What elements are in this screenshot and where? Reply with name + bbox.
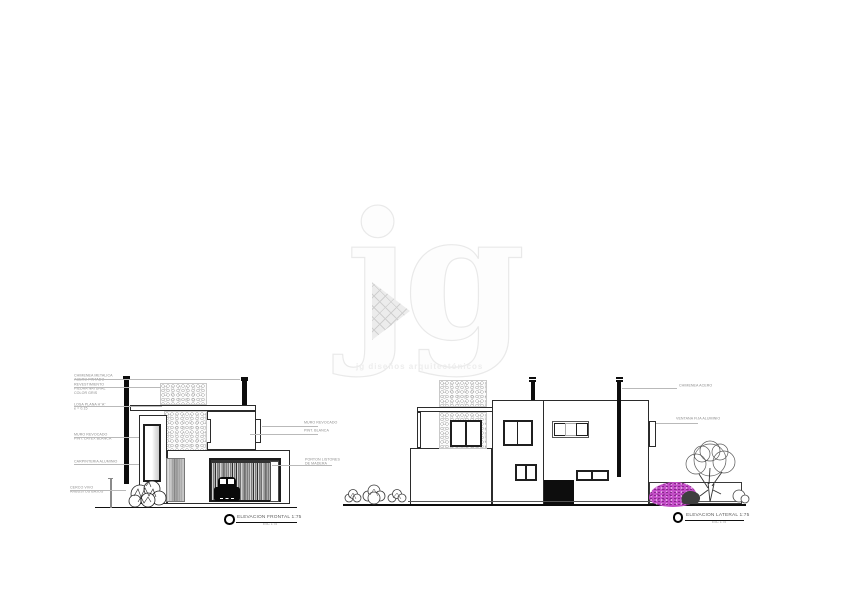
elev2-chimney1-cap [529,377,536,379]
elev2-scale-note: ESC 1:75 [712,521,726,524]
elev2-chimney1 [531,382,535,400]
elev1-stone-parapet [160,383,207,405]
elev1-garage-pillar [270,461,280,502]
elev2-side-window [649,421,656,448]
elev2-bushes-left [343,480,409,505]
elev1-leader [250,434,318,435]
elev2-note: VENTANA FIJA ALUMINIO [676,417,720,421]
elev1-leader [70,490,126,491]
elev1-tall-window [143,424,161,482]
car-silhouette [214,477,241,503]
elev1-stone-wall-upper [164,411,207,451]
elev1-shrub [126,474,170,508]
elev1-leader [74,379,240,380]
elev2-lower-volume [410,448,492,505]
elev2-stone-parapet [439,380,488,407]
window-divider [465,422,467,445]
elev1-note: PINT. BLANCA [304,429,329,433]
window-pane [565,423,577,437]
elev2-leader [622,388,677,389]
elev2-window-stone [450,420,482,447]
elev1-scale-note: ESC 1:75 [263,523,277,526]
window-pane [576,423,588,437]
car-windshield [220,479,234,484]
tree-base-shrub [682,491,701,504]
elev2-window-a [503,420,533,446]
elev1-title: ELEVACION FRONTAL 1:75 [237,515,302,520]
elev1-leader [272,465,332,466]
elev1-note: REVESTIMIENTO PIEDRA NATURAL COLOR GRIS [74,383,106,396]
elev2-chimney2 [617,382,621,477]
elev2-leader [656,423,698,424]
elev2-window-c [515,464,538,481]
elev1-title-marker [224,514,235,525]
window-divider [525,466,527,479]
watermark-tagline: jg diseños arquitectónicos [356,362,483,371]
elev1-pole-cap [108,478,113,480]
elev1-upper-volume [207,411,256,450]
car-windshield-divider [226,479,228,484]
elev1-chimney-left [124,379,129,484]
elev1-pole [110,478,112,508]
elev2-title-marker [673,512,684,523]
elev2-chimney2-cap [616,377,623,379]
window-divider [591,472,593,480]
elev2-tree [670,438,750,506]
elev1-leader [74,387,161,388]
elev2-slab-support [417,412,422,448]
elev2-title: ELEVACION LATERAL 1:75 [686,513,749,518]
elev1-leader [262,426,318,427]
elev1-fin-right [255,419,261,443]
elev2-window-d [576,470,609,482]
elev1-leader [74,406,162,407]
elev2-window-strip [552,421,590,438]
elev1-leader [74,437,139,438]
window-divider [517,422,519,444]
elev2-note: CHIMENEA ACERO [679,384,712,388]
architectural-sheet: jg jg diseños arquitectónicos [0,0,849,600]
elev1-note: MURO REVOCADO [304,421,337,425]
window-pane [554,423,566,437]
elev1-leader [74,464,139,465]
car-grille [220,498,234,499]
